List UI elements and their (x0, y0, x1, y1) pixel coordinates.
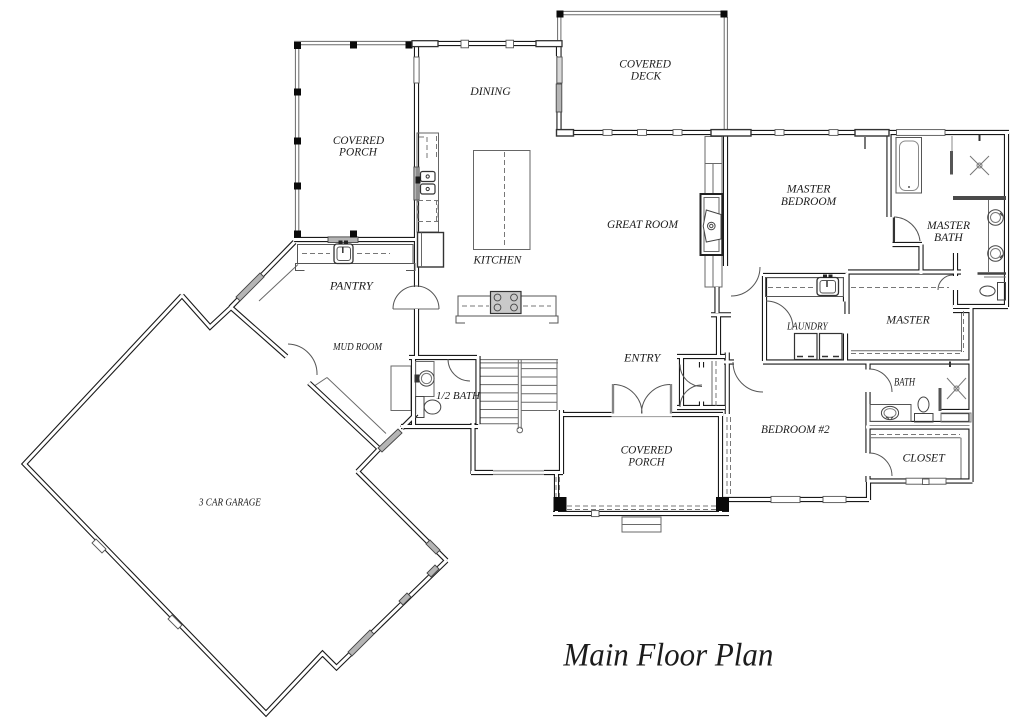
svg-text:PORCH: PORCH (627, 455, 666, 469)
svg-text:DINING: DINING (469, 84, 511, 98)
svg-text:PANTRY: PANTRY (329, 279, 374, 293)
svg-text:MUD ROOM: MUD ROOM (332, 341, 383, 353)
svg-text:KITCHEN: KITCHEN (473, 253, 523, 267)
svg-text:PORCH: PORCH (338, 145, 378, 159)
svg-text:ENTRY: ENTRY (623, 351, 662, 365)
svg-text:3 CAR GARAGE: 3 CAR GARAGE (198, 496, 261, 508)
svg-text:BATH: BATH (894, 374, 916, 388)
svg-text:BEDROOM: BEDROOM (781, 194, 837, 208)
svg-text:MASTER: MASTER (885, 313, 930, 327)
svg-text:DECK: DECK (630, 69, 662, 83)
svg-text:LAUNDRY: LAUNDRY (786, 320, 828, 332)
svg-text:BATH: BATH (934, 230, 964, 244)
svg-text:BEDROOM #2: BEDROOM #2 (761, 422, 830, 436)
svg-text:Main Floor Plan: Main Floor Plan (562, 638, 773, 674)
svg-text:GREAT ROOM: GREAT ROOM (607, 217, 679, 231)
svg-text:1/2 BATH: 1/2 BATH (436, 390, 481, 402)
svg-text:CLOSET: CLOSET (903, 450, 947, 464)
